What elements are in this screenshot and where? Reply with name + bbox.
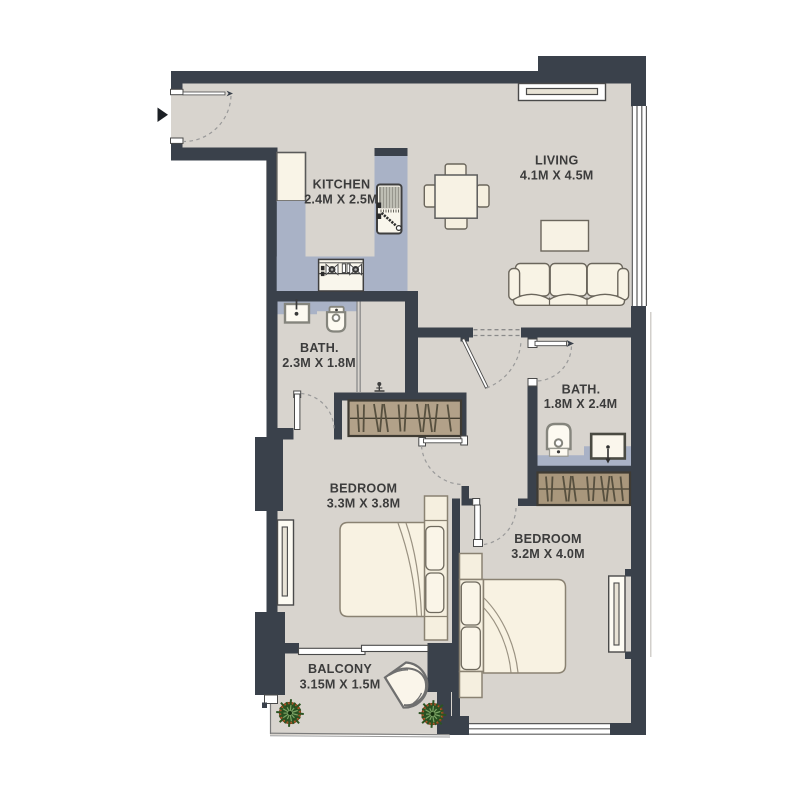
svg-text:3.2M X 4.0M: 3.2M X 4.0M (511, 547, 585, 561)
svg-text:4.1M X 4.5M: 4.1M X 4.5M (520, 169, 594, 183)
svg-text:BEDROOM: BEDROOM (514, 532, 582, 546)
svg-text:LIVING: LIVING (535, 154, 578, 168)
svg-text:BALCONY: BALCONY (308, 662, 372, 676)
svg-text:BEDROOM: BEDROOM (330, 482, 398, 496)
svg-text:KITCHEN: KITCHEN (313, 178, 371, 192)
svg-text:2.3M X 1.8M: 2.3M X 1.8M (282, 356, 356, 370)
svg-text:3.3M X 3.8M: 3.3M X 3.8M (327, 497, 401, 511)
svg-text:BATH.: BATH. (300, 341, 339, 355)
svg-text:3.15M X 1.5M: 3.15M X 1.5M (300, 678, 381, 692)
svg-text:2.4M X 2.5M: 2.4M X 2.5M (304, 193, 378, 207)
svg-text:1.8M X 2.4M: 1.8M X 2.4M (544, 397, 618, 411)
svg-text:BATH.: BATH. (562, 383, 601, 397)
